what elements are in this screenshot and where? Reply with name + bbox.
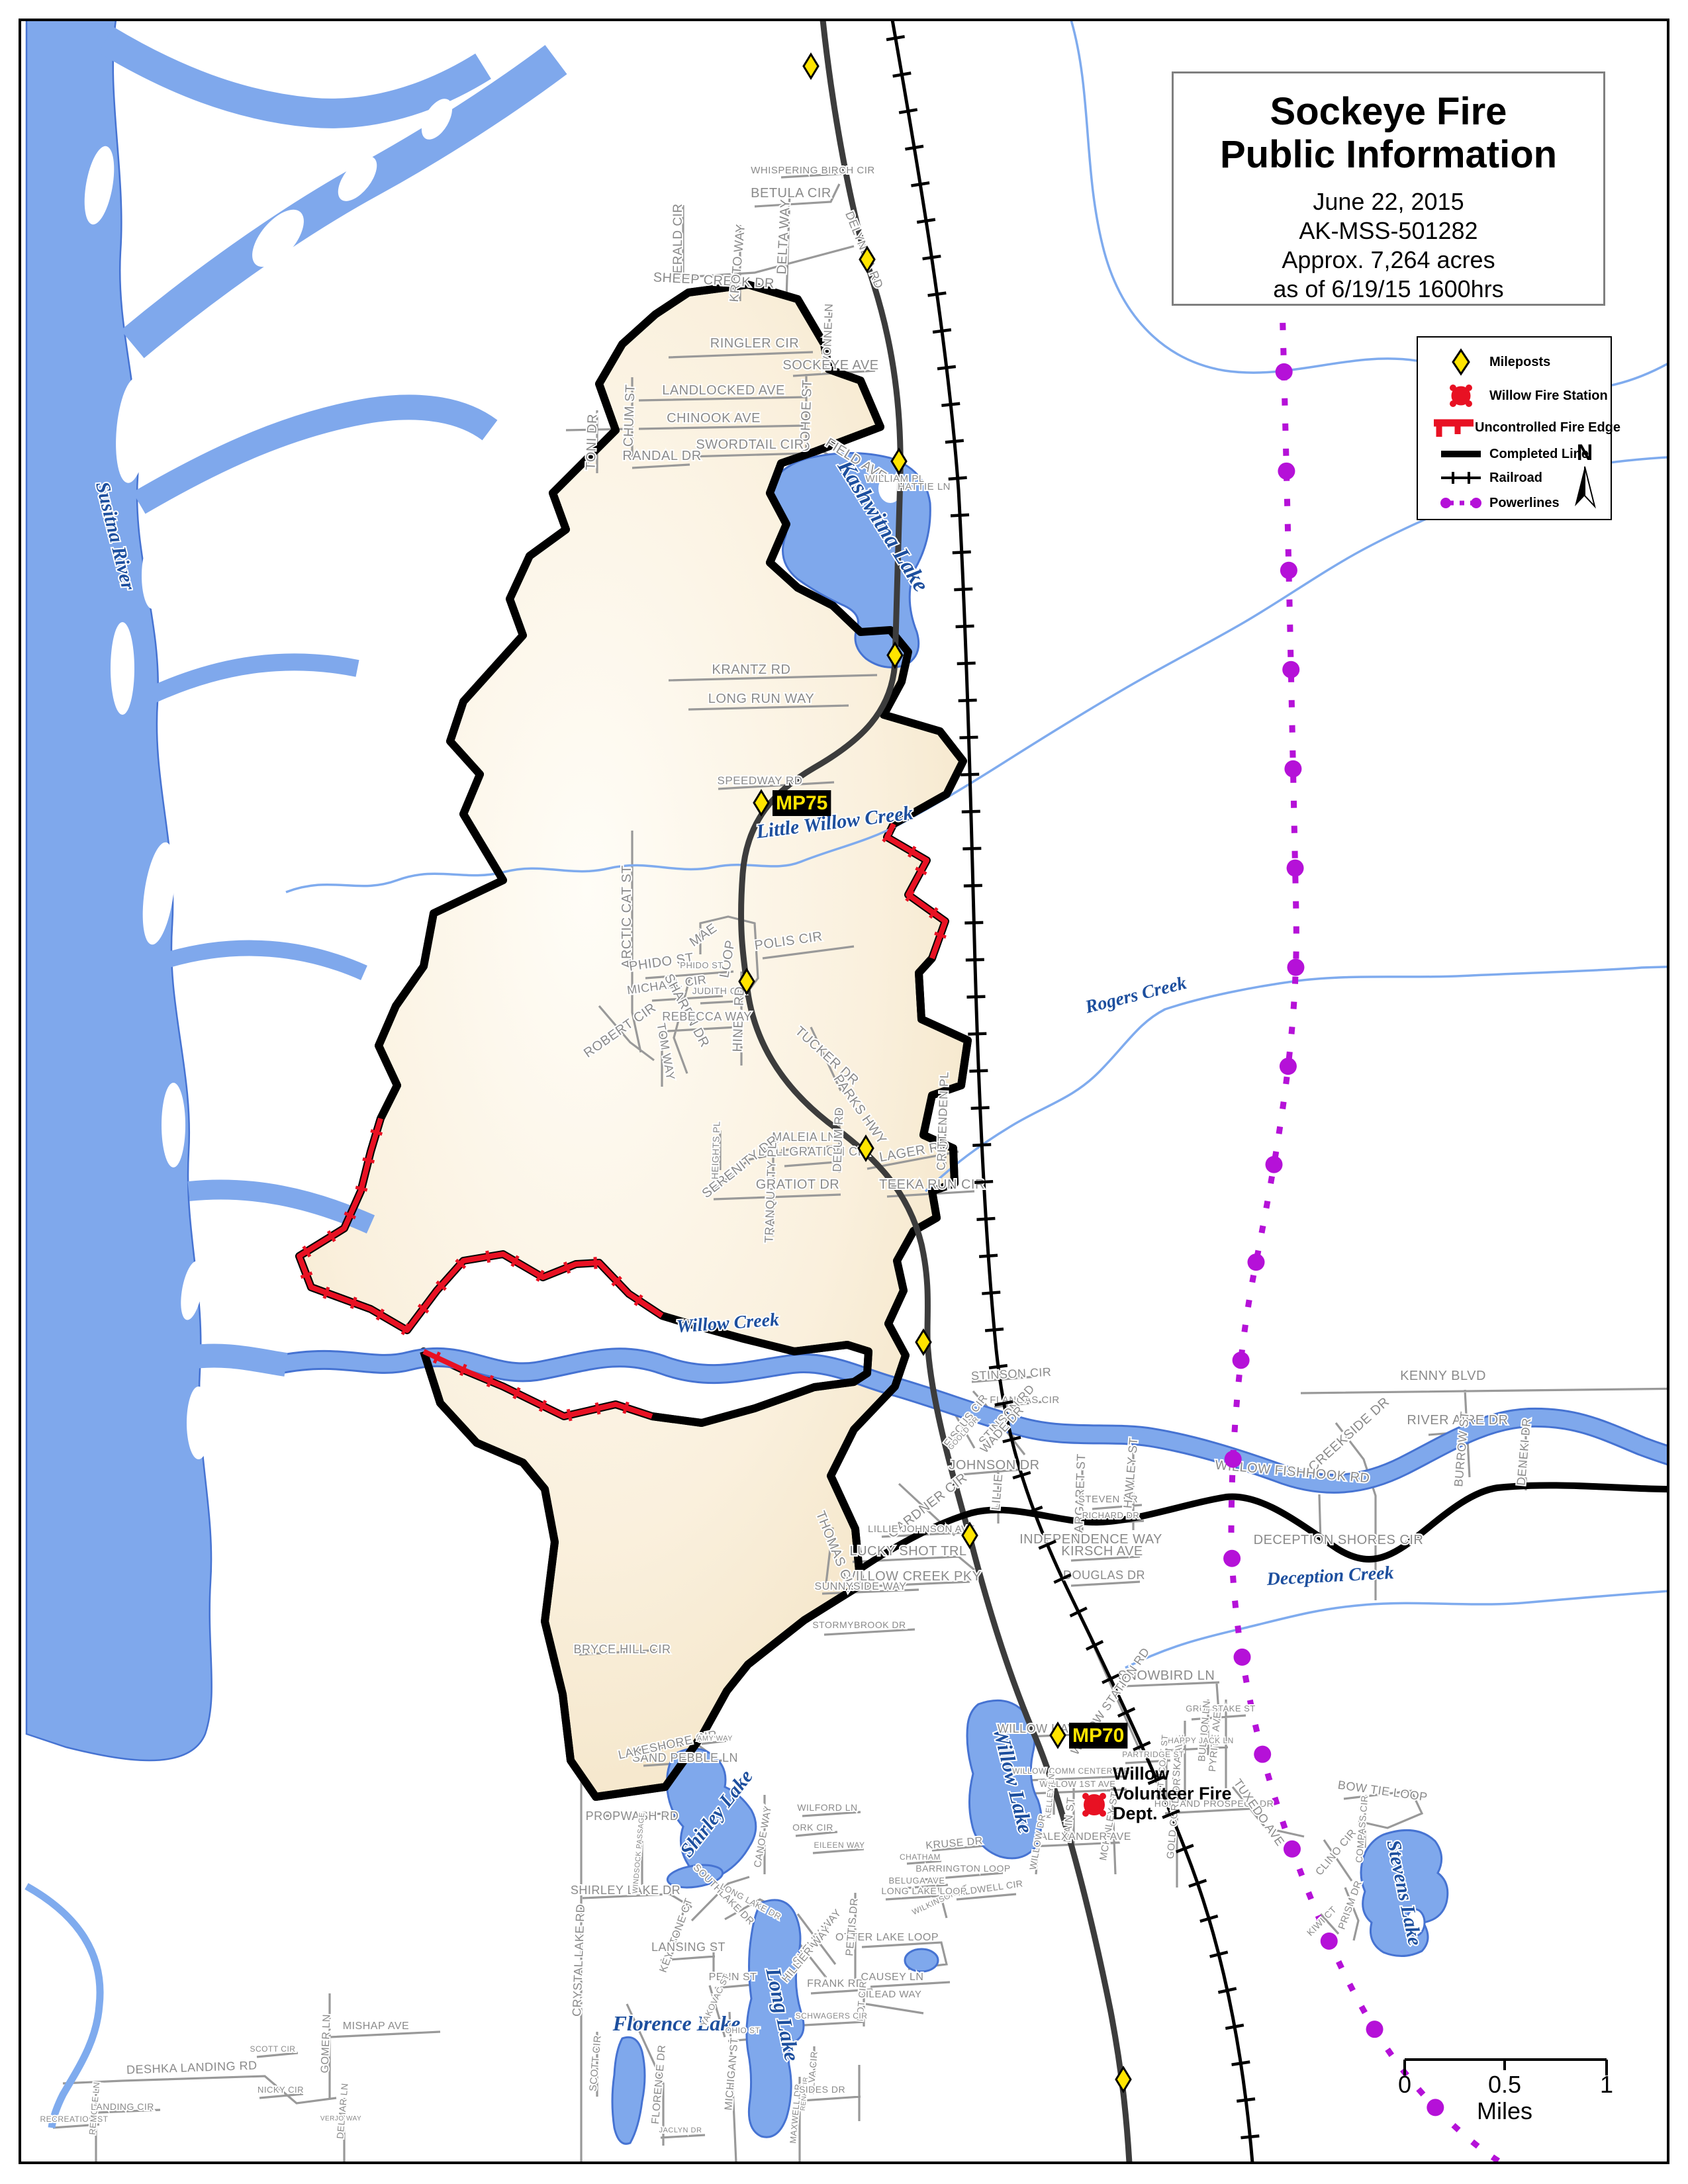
road-label-scott-cir: SCOTT CIR — [587, 2034, 603, 2091]
path-tick — [905, 146, 923, 150]
road-label-lillie-johnson-ave: LILLIE JOHNSON AVE — [868, 1524, 975, 1535]
path-tick — [976, 1218, 995, 1220]
path-tick — [969, 1071, 988, 1071]
road-label-gratiot-dr: GRATIOT DR — [756, 1177, 839, 1192]
fire-station-icon — [1082, 1793, 1106, 1817]
road-label-deception-shores-cir: DECEPTION SHORES CIR — [1254, 1533, 1424, 1547]
florence-lake — [612, 2037, 645, 2144]
scale-tick-label: 0.5 — [1488, 2071, 1521, 2098]
powerline-dot — [1278, 463, 1295, 480]
north-label: N — [1577, 441, 1593, 465]
fire-station-label: Volunteer Fire — [1113, 1784, 1232, 1803]
road-label-happy-jack-ln: HAPPY JACK LN — [1168, 1736, 1234, 1745]
braided-channel — [169, 948, 364, 973]
road-label-speedway-rd: SPEEDWAY RD — [718, 774, 803, 787]
road-label-douglas-dr: DOUGLAS DR — [1063, 1569, 1145, 1582]
road-label-toni-dr: TONI DR — [584, 414, 600, 471]
road-label-teeka-run-cir: TEEKA RUN CIR — [879, 1177, 985, 1192]
road-label-randal-dr: RANDAL DR — [622, 449, 701, 463]
road-label-mishap-ave: MISHAP AVE — [343, 2021, 409, 2032]
as-of-timestamp: as of 6/19/15 1600hrs — [1174, 275, 1603, 304]
path-tick — [951, 515, 969, 516]
road-label-chatham: CHATHAM — [900, 1852, 941, 1862]
road-label-sides-dr: SIDES DR — [799, 2084, 845, 2095]
powerline-dot — [1321, 1933, 1338, 1950]
powerline-dot — [1254, 1746, 1271, 1763]
powerlines-icon — [1432, 496, 1489, 510]
road-label-delum-rd: DELUM RD — [830, 1107, 845, 1172]
path-tick — [968, 1034, 986, 1034]
road-label-windsock-passage: WINDSOCK PASSAGE — [632, 1812, 647, 1894]
powerline-dot — [1287, 860, 1304, 877]
small-pond — [905, 1949, 938, 1972]
road-label-jaclyn-dr: JACLYN DR — [659, 2126, 702, 2134]
scale-tick-label: 0 — [1398, 2071, 1411, 2098]
road-label-alexander-ave: ALEXANDER AVE — [1040, 1831, 1131, 1843]
legend: Mileposts Willow Fire Station Uncontroll… — [1417, 336, 1612, 520]
road-label-canoe-way: CANOE WAY — [752, 1805, 774, 1868]
milepost-diamond — [804, 54, 818, 78]
powerline-dot — [1427, 2099, 1444, 2116]
path-tick — [966, 960, 984, 960]
uncontrolled-fire-edge-icon — [1432, 416, 1475, 439]
road-label-long-run-way: LONG RUN WAY — [708, 692, 814, 706]
road-label-beluga-ave: BELUGA AVE — [889, 1876, 945, 1886]
road-label-long-lake-loop: LONG LAKE LOOP — [881, 1886, 966, 1896]
path-tick — [956, 626, 974, 627]
powerline-dot — [1233, 1351, 1250, 1369]
fire-station-label: Dept. — [1113, 1803, 1158, 1823]
north-arrow: N — [1568, 441, 1601, 515]
path-tick — [962, 848, 981, 849]
path-tick — [899, 110, 917, 113]
road-label-keystone-ct: KEYSTONE CT — [658, 1897, 695, 1974]
road-label-johnson-dr: JOHNSON DR — [949, 1458, 1039, 1473]
powerline-dot — [1225, 1451, 1242, 1468]
legend-label: Uncontrolled Fire Edge — [1475, 420, 1620, 435]
path-tick — [962, 811, 980, 812]
road-label-stinson-cir: STINSON CIR — [970, 1365, 1051, 1383]
road-label-creekside-dr: CREEKSIDE DR — [1306, 1394, 1393, 1475]
road-label-crystal-lake-rd: CRYSTAL LAKE RD — [570, 1903, 587, 2017]
powerline-dot — [1223, 1550, 1241, 1567]
road-label-prism-dr: PRISM DR — [1336, 1879, 1364, 1931]
road-label-schwagers-cir: SCHWAGERS CIR — [796, 2011, 868, 2021]
road-label-deshka-landing-rd: DESHKA LANDING RD — [126, 2059, 258, 2077]
road-label-ringler-cir: RINGLER CIR — [710, 336, 799, 351]
road-label-kenny-blvd: KENNY BLVD — [1400, 1369, 1486, 1383]
road-label-causey-ln: CAUSEY LN — [861, 1972, 924, 1983]
map-canvas: Susitna RiverKashwitna LakeLittle Willow… — [0, 0, 1688, 2184]
road-label-lucky-shot-trl: LUCKY SHOT TRL — [849, 1544, 966, 1559]
road-label-betula-cir: BETULA CIR — [751, 186, 831, 201]
path-tick — [917, 220, 935, 222]
path-tick — [959, 700, 977, 701]
water-label-rogers-creek: Rogers Creek — [1082, 973, 1188, 1018]
road-label-heights-pl: HEIGHTS PL — [709, 1120, 722, 1179]
path-tick — [954, 589, 972, 590]
road-label-whispering-birch-cir: WHISPERING BIRCH CIR — [751, 165, 875, 176]
road-label-krantz-rd: KRANTZ RD — [712, 662, 791, 677]
braided-channel — [106, 40, 483, 113]
incident-id: AK-MSS-501282 — [1174, 216, 1603, 246]
road-label-ohio-st: OHIO ST — [726, 2026, 761, 2035]
road-label-landlocked-ave: LANDLOCKED AVE — [662, 383, 785, 398]
road-label-michigan-st: MICHIGAN ST — [723, 2037, 741, 2111]
map-title-line2: Public Information — [1174, 134, 1603, 177]
road-label-frank-rd: FRANK RD — [807, 1978, 864, 1989]
path-tick — [923, 256, 941, 259]
road-label-sunnyside-way: SUNNYSIDE WAY — [815, 1581, 907, 1592]
legend-item-uncontrolled-edge: Uncontrolled Fire Edge — [1418, 413, 1611, 442]
road-label-shirley-lake-dr: SHIRLEY LAKE DR — [571, 1884, 680, 1897]
fire-station-icon — [1432, 381, 1489, 410]
road-label-propwash-rd: PROPWASH RD — [586, 1809, 679, 1823]
powerline-dot — [1284, 1841, 1301, 1858]
road-label-scott-cir: SCOTT CIR — [250, 2044, 296, 2054]
path-tick — [985, 1329, 1004, 1331]
powerline-dot — [1247, 1253, 1264, 1271]
bottom-left-creek — [26, 1886, 100, 2128]
path-tick — [953, 552, 971, 553]
road-label-wilford-ln: WILFORD LN — [797, 1802, 857, 1813]
powerline-dot — [1266, 1156, 1283, 1173]
braided-channel — [189, 1189, 371, 1224]
road-label-delyndia-rd: DELYNDIA RD — [843, 209, 886, 291]
deception-creek — [1125, 1590, 1688, 1668]
scale-unit-label: Miles — [1477, 2097, 1532, 2124]
powerline-dot — [1233, 1649, 1250, 1666]
road-label-eileen-way: EILEEN WAY — [814, 1841, 865, 1850]
road-label-maleia-ln: MALEIA LN — [772, 1130, 837, 1144]
path-tick — [961, 774, 979, 775]
path-tick — [595, 1257, 596, 1269]
legend-label: Willow Fire Station — [1489, 388, 1608, 404]
powerline-dot — [1287, 959, 1304, 976]
path-tick — [911, 183, 929, 185]
road-label-phido-st: PHIDO ST — [680, 960, 723, 970]
road-label-hattie-ln: HATTIE LN — [898, 481, 951, 492]
milepost-label-mp75: MP75 — [776, 792, 827, 814]
completed-line — [859, 1485, 1688, 1570]
road-label-chum-st: CHUM ST — [621, 384, 637, 447]
path-tick — [964, 886, 982, 886]
path-tick — [972, 1144, 991, 1145]
scale-tick-label: 1 — [1600, 2071, 1613, 2098]
powerline-dot — [1280, 1058, 1297, 1075]
milepost-diamond-icon — [1432, 347, 1489, 377]
powerline-dot — [1276, 363, 1293, 381]
powerline-dot — [1282, 661, 1299, 678]
map-title-line1: Sockeye Fire — [1174, 91, 1603, 134]
path-tick — [941, 404, 960, 406]
rogers-creek — [925, 966, 1688, 1191]
road-label-pettis-dr: PETTIS DR — [844, 1897, 861, 1956]
path-tick — [933, 330, 951, 332]
path-tick — [966, 997, 985, 997]
path-tick — [487, 1251, 489, 1263]
legend-item-mileposts: Mileposts — [1418, 345, 1611, 379]
road-label-sockeye-ave: SOCKEYE AVE — [782, 358, 878, 373]
path-tick — [886, 36, 905, 40]
road-label-amy-way: AMY WAY — [697, 1735, 733, 1743]
path-tick — [928, 293, 947, 296]
powerline-dot — [1280, 562, 1297, 579]
legend-label: Powerlines — [1489, 496, 1560, 511]
road-label-clino-cir: CLINO CIR — [1314, 1827, 1359, 1878]
path-tick — [1241, 2136, 1259, 2138]
road-label-richard-dr: RICHARD DR — [1082, 1510, 1140, 1520]
acreage: Approx. 7,264 acres — [1174, 246, 1603, 275]
road-label-lillie: LILLIE — [989, 1473, 1006, 1511]
braided-channel — [139, 407, 490, 503]
path-tick — [959, 737, 978, 738]
road-label-penn-st: PENN ST — [709, 1972, 757, 1983]
path-tick — [1232, 2062, 1250, 2065]
road-label-bryce-hill-cir: BRYCE HILL CIR — [573, 1643, 671, 1656]
legend-label: Mileposts — [1489, 355, 1550, 370]
road-label-barrington-loop: BARRINGTON LOOP — [915, 1863, 1010, 1874]
milepost-label-mp70: MP70 — [1072, 1725, 1124, 1747]
road-label-florence-dr: FLORENCE DR — [650, 2044, 668, 2124]
fire-station-label: Willow — [1113, 1764, 1170, 1784]
completed-line-icon — [1432, 449, 1489, 459]
road-label-kirsch-ave: KIRSCH AVE — [1061, 1544, 1143, 1559]
railroad-icon — [1432, 471, 1489, 485]
path-tick — [982, 1292, 1000, 1293]
road-label-chinook-ave: CHINOOK AVE — [667, 411, 761, 426]
powerline-dot — [1284, 760, 1301, 778]
map-date: June 22, 2015 — [1174, 187, 1603, 216]
road-label-tuxedo-ave: TUXEDO AVE — [1231, 1776, 1287, 1848]
road-label-arctic-cat-st: ARCTIC CAT ST — [620, 865, 634, 968]
legend-label: Railroad — [1489, 471, 1542, 486]
legend-item-fire-station: Willow Fire Station — [1418, 379, 1611, 413]
road-label-swordtail-cir: SWORDTAIL CIR — [696, 437, 804, 452]
path-tick — [974, 1181, 993, 1183]
road-label-kiwi-ct: KIWI CT — [1305, 1904, 1338, 1938]
braided-channel — [185, 1356, 286, 1365]
powerline-dot — [1366, 2021, 1383, 2038]
path-tick — [949, 478, 967, 479]
road-label-bow-tie-loop: BOW TIE LOOP — [1337, 1778, 1429, 1804]
braided-channel — [152, 662, 357, 695]
road-label-partridge-st: PARTRIDGE ST — [1122, 1750, 1184, 1759]
path-tick — [1237, 2099, 1255, 2101]
road-label-stormybrook-dr: STORMYBROOK DR — [812, 1619, 906, 1630]
water-label-florence-lake: Florence Lake — [612, 2011, 741, 2035]
path-tick — [971, 1107, 990, 1108]
road-label-verjo-way: VERJO WAY — [320, 2115, 361, 2122]
road-label-lansing-st: LANSING ST — [651, 1940, 726, 1954]
path-tick — [979, 1255, 998, 1257]
road-label-gomer-ln: GOMER LN — [319, 2014, 332, 2073]
road-label-landing-cir: LANDING CIR — [91, 2101, 154, 2112]
map-page: Susitna RiverKashwitna LakeLittle Willow… — [0, 0, 1688, 2184]
road-label-rebecca-way: REBECCA WAY — [662, 1010, 752, 1023]
road-label-delmar-ln: DELMAR LN — [334, 2083, 350, 2140]
road-label-ork-cir: ORK CIR — [792, 1822, 833, 1833]
path-tick — [964, 923, 983, 923]
title-box: Sockeye Fire Public Information June 22,… — [1172, 71, 1605, 306]
path-tick — [937, 367, 956, 369]
path-tick — [893, 73, 912, 76]
path-tick — [1218, 1989, 1236, 1993]
road-label-nicky-cir: NICKY CIR — [258, 2085, 304, 2095]
path-tick — [1225, 2025, 1244, 2028]
path-tick — [945, 441, 964, 443]
path-tick — [957, 663, 976, 664]
